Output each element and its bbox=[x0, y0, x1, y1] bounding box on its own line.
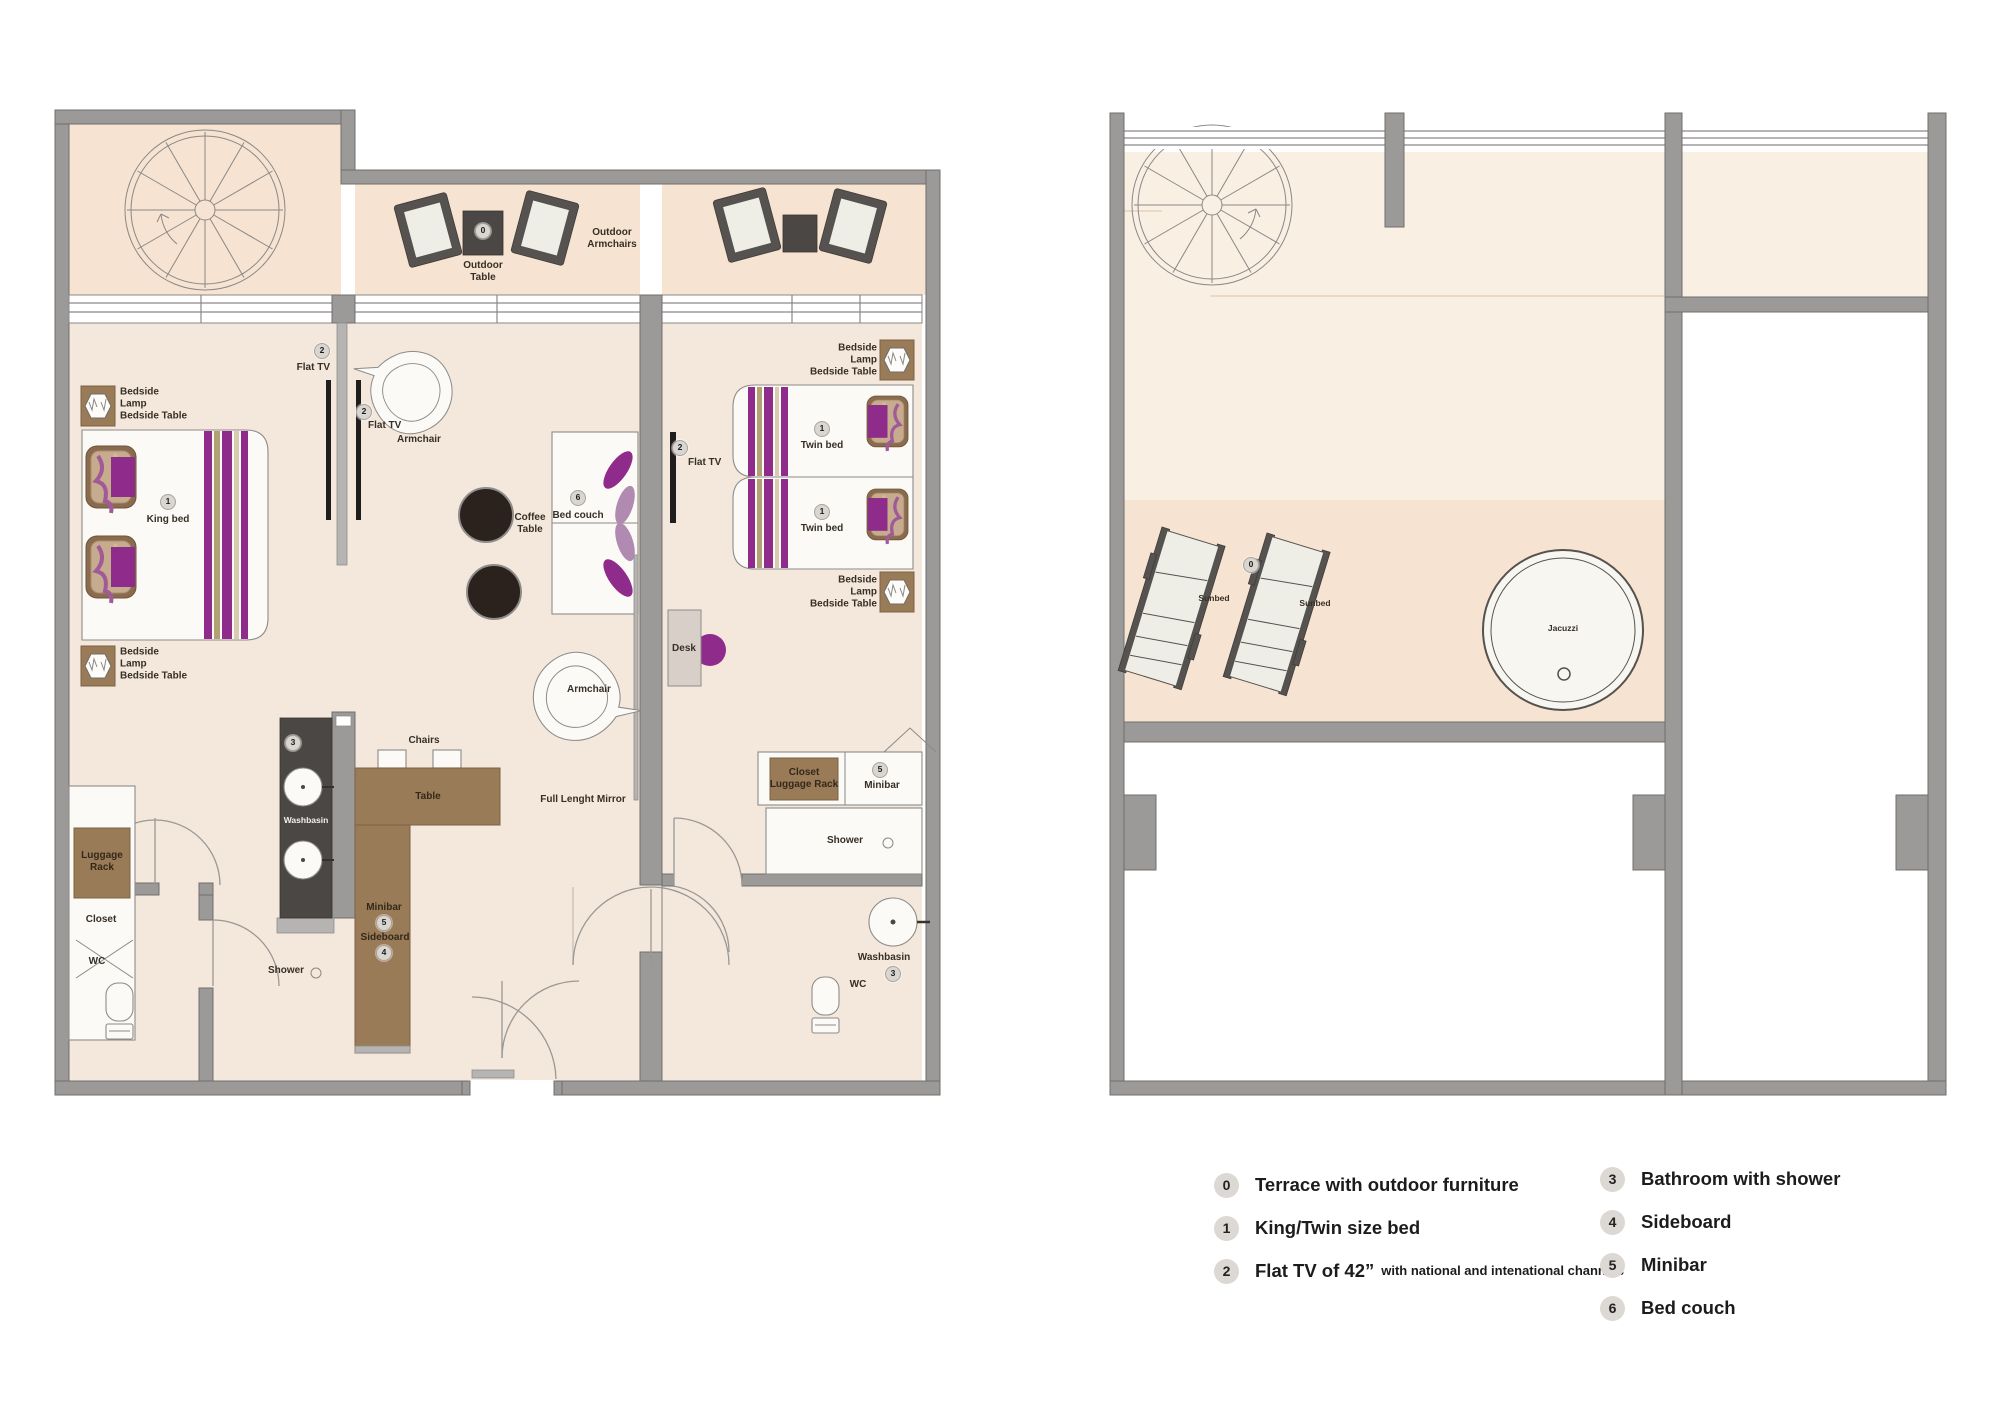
badge-outdoor-table: 0 bbox=[475, 223, 491, 239]
legend-item-bathroom: 3 Bathroom with shower bbox=[1600, 1167, 1840, 1192]
bedside-table-twin-top bbox=[880, 340, 914, 380]
full-length-mirror-label: Full Lenght Mirror bbox=[540, 794, 626, 806]
coffee-table-1 bbox=[459, 488, 513, 542]
floor-plan-page: Outdoor Table Outdoor Armchairs Bedside … bbox=[0, 0, 2000, 1414]
legend-item-bed-couch: 6 Bed couch bbox=[1600, 1296, 1736, 1321]
outdoor-armchairs-label: Outdoor Armchairs bbox=[586, 227, 638, 251]
legend-badge-1: 1 bbox=[1214, 1216, 1239, 1241]
sunbed-2-label: Sunbed bbox=[1299, 598, 1330, 608]
floor-plan-drawing bbox=[0, 0, 2000, 1414]
room-divider-wall bbox=[640, 295, 662, 885]
shower-label-twin: Shower bbox=[827, 835, 863, 847]
legend-item-terrace: 0 Terrace with outdoor furniture bbox=[1214, 1173, 1519, 1198]
wc-label-left: WC bbox=[89, 956, 106, 968]
badge-twin-bed-1: 1 bbox=[814, 421, 830, 437]
legend-item-tv: 2 Flat TV of 42” with national and inten… bbox=[1214, 1259, 1624, 1284]
legend-item-bed: 1 King/Twin size bed bbox=[1214, 1216, 1420, 1241]
legend-badge-2: 2 bbox=[1214, 1259, 1239, 1284]
flat-tv-left-icon bbox=[326, 380, 331, 520]
coffee-table-2 bbox=[467, 565, 521, 619]
washbasin-label-twin: Washbasin bbox=[858, 952, 910, 964]
glass-facade bbox=[1124, 127, 1928, 149]
minibar-label-left: Minibar bbox=[366, 902, 402, 914]
legend-item-minibar: 5 Minibar bbox=[1600, 1253, 1707, 1278]
washbasin-label-left: Washbasin bbox=[284, 815, 329, 825]
badge-tv-2: 2 bbox=[356, 404, 372, 420]
desk-label: Desk bbox=[672, 643, 696, 655]
closet-label-left: Closet bbox=[86, 914, 117, 926]
badge-sideboard: 4 bbox=[376, 945, 392, 961]
bedside-label-twin-bottom: Bedside Lamp Bedside Table bbox=[809, 574, 877, 609]
sideboard-label: Sideboard bbox=[361, 932, 410, 944]
badge-twin-bed-2: 1 bbox=[814, 504, 830, 520]
king-bed bbox=[82, 430, 268, 640]
wc-label-twin: WC bbox=[850, 979, 867, 991]
badge-sunbed: 0 bbox=[1243, 557, 1259, 573]
twin-bed-2-label: Twin bed bbox=[801, 523, 844, 535]
plan-level2 bbox=[1110, 113, 1946, 1095]
flat-tv-label-3: Flat TV bbox=[688, 457, 721, 469]
sunbed-1-label: Sunbed bbox=[1198, 593, 1229, 603]
table-label: Table bbox=[415, 791, 440, 803]
badge-tv-3: 2 bbox=[672, 440, 688, 456]
wc-twin-icon bbox=[812, 977, 839, 1033]
bedside-label-king-top: Bedside Lamp Bedside Table bbox=[120, 386, 188, 421]
full-length-mirror-icon bbox=[634, 555, 638, 800]
legend-badge-4: 4 bbox=[1600, 1210, 1625, 1235]
badge-washbasin-twin: 3 bbox=[885, 966, 901, 982]
entry-door-leaf bbox=[472, 1070, 514, 1078]
chairs-label: Chairs bbox=[408, 735, 439, 747]
upper-divider-wall bbox=[1665, 113, 1682, 1095]
jacuzzi-label: Jacuzzi bbox=[1548, 623, 1578, 633]
badge-minibar-twin: 5 bbox=[872, 762, 888, 778]
badge-tv-1: 2 bbox=[314, 343, 330, 359]
bedside-table-king-bottom bbox=[81, 646, 115, 686]
king-bed-label: King bed bbox=[147, 514, 190, 526]
bedside-label-king-bottom: Bedside Lamp Bedside Table bbox=[120, 646, 188, 681]
badge-bed-couch: 6 bbox=[570, 490, 586, 506]
window-band bbox=[69, 295, 922, 323]
flat-tv-label-1: Flat TV bbox=[297, 362, 330, 374]
legend-badge-3: 3 bbox=[1600, 1167, 1625, 1192]
flat-tv-right-icon bbox=[356, 380, 361, 520]
bedside-table-twin-bottom bbox=[880, 572, 914, 612]
legend-item-sideboard: 4 Sideboard bbox=[1600, 1210, 1731, 1235]
legend-badge-0: 0 bbox=[1214, 1173, 1239, 1198]
shower-label-left: Shower bbox=[268, 965, 304, 977]
armchair-living-label: Armchair bbox=[397, 434, 441, 446]
coffee-table-label: Coffee Table bbox=[511, 512, 549, 536]
bedside-label-twin-top: Bedside Lamp Bedside Table bbox=[809, 342, 877, 377]
bed-couch-label: Bed couch bbox=[552, 510, 603, 522]
plan-level1 bbox=[55, 110, 940, 1096]
badge-washbasin-left: 3 bbox=[285, 735, 301, 751]
twin-bed-1-label: Twin bed bbox=[801, 440, 844, 452]
badge-minibar-left: 5 bbox=[376, 915, 392, 931]
legend-badge-6: 6 bbox=[1600, 1296, 1625, 1321]
bedside-table-king-top bbox=[81, 386, 115, 426]
wc-left-icon bbox=[106, 983, 133, 1039]
legend-badge-5: 5 bbox=[1600, 1253, 1625, 1278]
flat-tv-label-2: Flat TV bbox=[368, 420, 401, 432]
armchair-lower-label: Armchair bbox=[567, 684, 611, 696]
bed-couch bbox=[552, 432, 639, 614]
closet-luggage-rack-label: Closet Luggage Rack bbox=[769, 767, 839, 791]
badge-king-bed: 1 bbox=[160, 494, 176, 510]
luggage-rack-label: Luggage Rack bbox=[79, 850, 125, 874]
minibar-label-twin: Minibar bbox=[864, 780, 900, 792]
outdoor-table-label: Outdoor Table bbox=[461, 260, 505, 284]
